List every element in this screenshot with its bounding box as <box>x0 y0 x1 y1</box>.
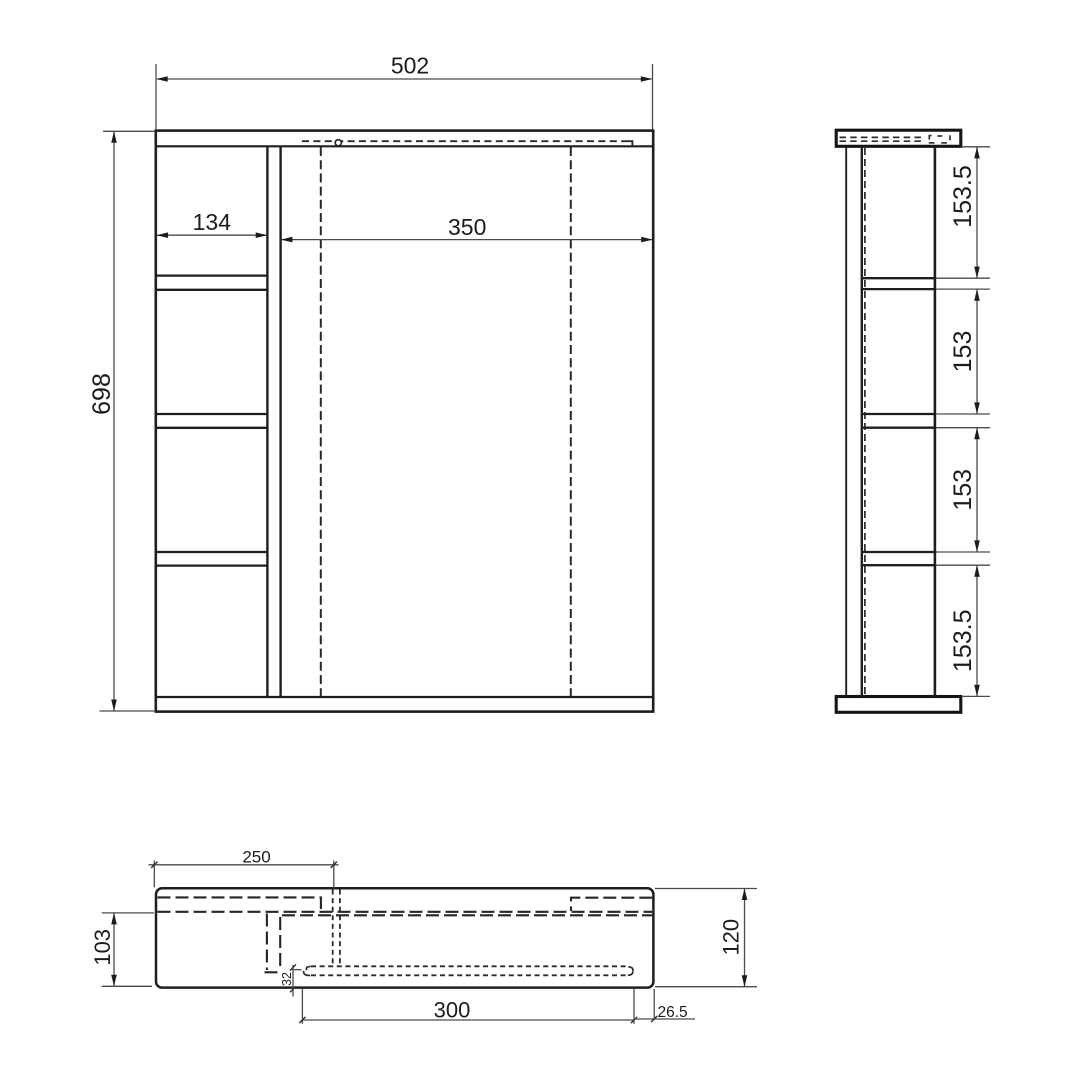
svg-text:698: 698 <box>88 373 116 415</box>
svg-text:32: 32 <box>280 972 294 986</box>
svg-text:350: 350 <box>448 214 486 240</box>
svg-text:300: 300 <box>434 998 471 1023</box>
svg-text:153.5: 153.5 <box>949 165 977 228</box>
svg-text:502: 502 <box>391 53 429 79</box>
svg-text:153: 153 <box>949 469 977 511</box>
svg-text:250: 250 <box>242 847 270 866</box>
svg-text:153.5: 153.5 <box>949 610 977 673</box>
svg-text:134: 134 <box>193 209 232 235</box>
svg-text:26.5: 26.5 <box>658 1004 688 1021</box>
svg-text:153: 153 <box>949 331 977 373</box>
svg-text:120: 120 <box>719 919 744 956</box>
svg-text:103: 103 <box>90 929 115 966</box>
